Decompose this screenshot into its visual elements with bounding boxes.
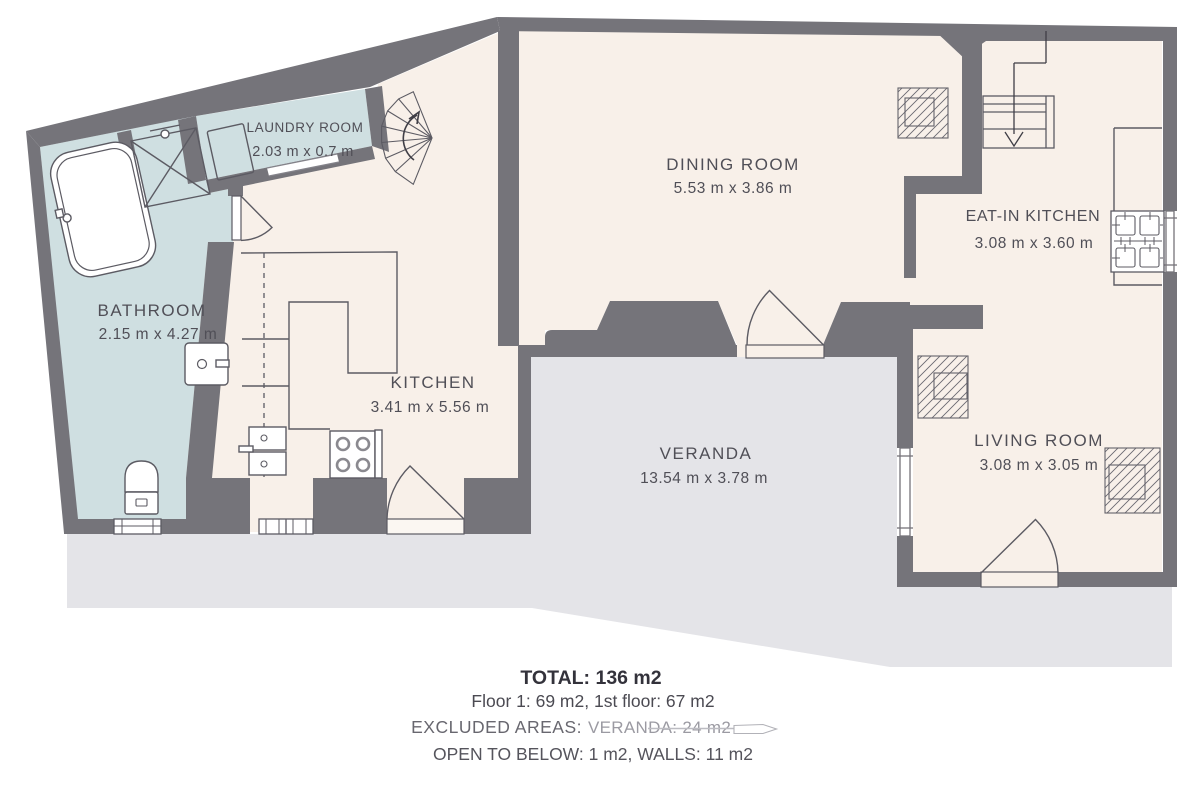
svg-text:LAUNDRY ROOM: LAUNDRY ROOM (247, 120, 364, 135)
svg-text:Floor 1: 69 m2, 1st floor: 67: Floor 1: 69 m2, 1st floor: 67 m2 (471, 691, 714, 711)
svg-text:VERANDA: VERANDA (660, 444, 753, 463)
svg-text:OPEN TO BELOW: 1 m2, WALLS: 1: OPEN TO BELOW: 1 m2, WALLS: 11 m2 (433, 744, 753, 764)
svg-text:TOTAL: 136 m2: TOTAL: 136 m2 (520, 667, 661, 689)
svg-text:VERANDA: 24 m2: VERANDA: 24 m2 (588, 718, 731, 737)
svg-text:KITCHEN: KITCHEN (390, 373, 475, 392)
svg-text:13.54 m x 3.78 m: 13.54 m x 3.78 m (640, 470, 768, 487)
svg-text:EXCLUDED AREAS:: EXCLUDED AREAS: (411, 717, 582, 737)
svg-text:5.53 m x 3.86 m: 5.53 m x 3.86 m (674, 180, 793, 197)
svg-text:EAT-IN KITCHEN: EAT-IN KITCHEN (966, 208, 1101, 225)
svg-text:3.08 m x 3.05 m: 3.08 m x 3.05 m (980, 457, 1099, 474)
svg-text:2.03 m x 0.7 m: 2.03 m x 0.7 m (252, 144, 354, 160)
svg-text:DINING ROOM: DINING ROOM (666, 155, 800, 174)
svg-text:LIVING ROOM: LIVING ROOM (974, 431, 1104, 450)
svg-text:BATHROOM: BATHROOM (98, 301, 207, 320)
svg-text:2.15 m x 4.27 m: 2.15 m x 4.27 m (99, 326, 218, 343)
svg-text:3.41 m x 5.56 m: 3.41 m x 5.56 m (371, 399, 490, 416)
svg-text:3.08 m x 3.60 m: 3.08 m x 3.60 m (975, 235, 1094, 252)
